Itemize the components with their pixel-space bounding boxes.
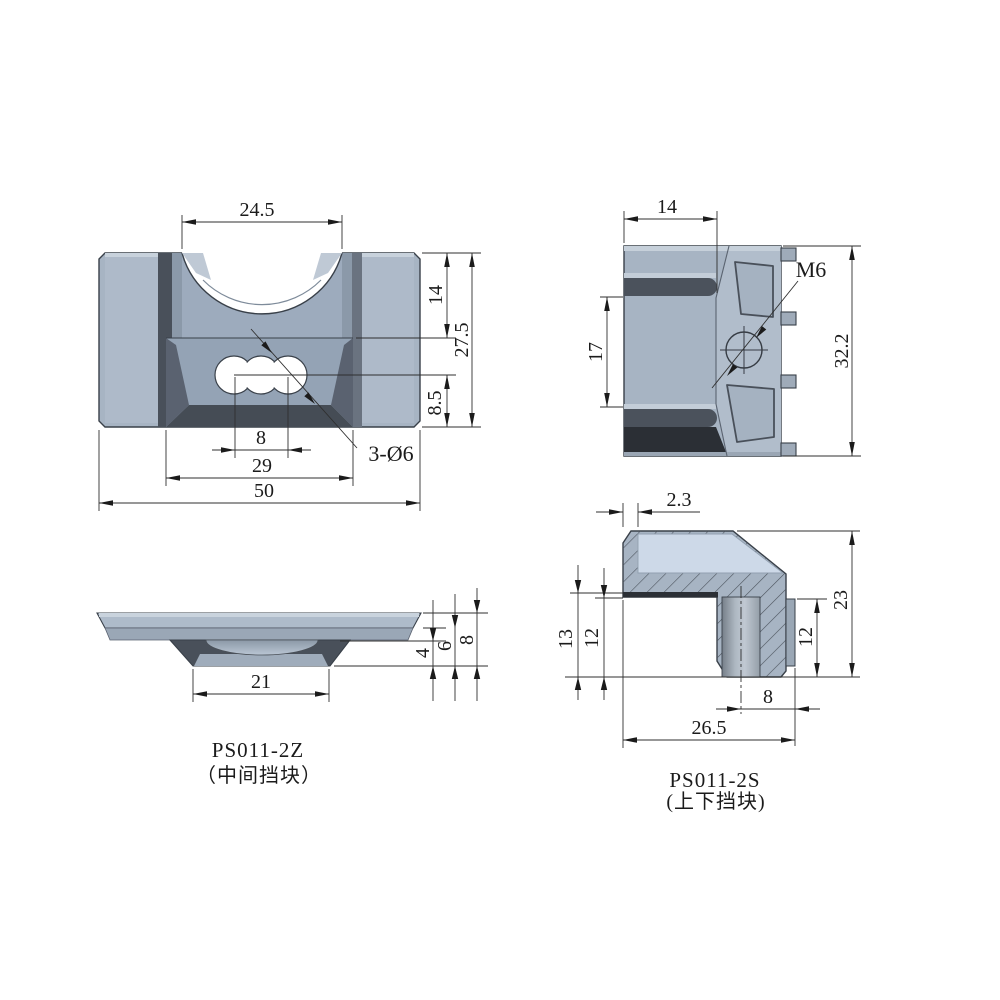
dim-text-step-depth: 4: [412, 648, 434, 658]
dim-text-lower-height: 8.5: [424, 391, 446, 416]
dim-text-thread-callout: M6: [796, 257, 827, 282]
dim-text-top-width: 14: [657, 196, 677, 218]
dim-text-section-total-width: 26.5: [692, 717, 727, 739]
part-number-label: PS011-2Z: [212, 738, 304, 762]
profile-boss-bottom-face: [194, 654, 328, 666]
dim-text-hole-pitch: 8: [256, 427, 266, 449]
dim-text-boss-width: 21: [251, 671, 271, 693]
side-top-highlight: [624, 246, 781, 251]
engineering-drawing-canvas: 24.5 14 8.5 27.5 8 29 50: [0, 0, 1000, 1000]
part-name-label: (上下挡块): [666, 790, 765, 813]
section-dark-strip: [623, 592, 718, 598]
side-bottom-edge: [624, 452, 781, 456]
dim-text-side-total-height: 32.2: [831, 334, 853, 369]
dim-text-groove-span: 17: [585, 342, 607, 362]
dim-text-total-width: 50: [254, 480, 274, 502]
dim-text-notch-width: 24.5: [240, 199, 275, 221]
front-recess-right-wall: [342, 253, 352, 338]
profile-plate-highlight: [99, 613, 419, 617]
dim-text-dish-depth: 6: [434, 641, 456, 651]
part-name-label: （中间挡块）: [196, 764, 322, 787]
front-bottom-bevel: [166, 405, 353, 427]
dim-text-left-outer-height: 13: [555, 629, 577, 649]
dim-text-total-height: 27.5: [451, 323, 473, 358]
dim-text-recess-width: 29: [252, 455, 272, 477]
dim-text-left-inner-height: 12: [581, 628, 603, 648]
side-groove-top: [624, 278, 717, 296]
dim-text-profile-total-height: 8: [456, 635, 478, 645]
dim-text-upper-height: 14: [425, 285, 447, 305]
dim-text-holes-callout: 3-Ø6: [368, 441, 413, 466]
side-groove-top-highlight: [624, 273, 716, 278]
dim-text-wall-thickness: 2.3: [667, 489, 692, 511]
side-underside-dark: [624, 427, 726, 452]
side-pocket-top: [735, 262, 773, 317]
front-right-flange: [362, 257, 414, 423]
dim-text-section-total-height: 23: [830, 590, 852, 610]
front-left-flange: [105, 257, 158, 423]
dim-text-bore-offset: 8: [763, 686, 773, 708]
section-tab: [786, 599, 795, 666]
front-recess-left-wall: [172, 253, 182, 338]
profile-plate-underband: [105, 628, 413, 640]
part-number-label: PS011-2S: [669, 768, 760, 792]
side-groove-bottom: [624, 409, 717, 427]
drawing-background: [0, 0, 1000, 1000]
front-right-dark-band: [352, 253, 362, 427]
side-groove-bottom-highlight: [624, 404, 716, 409]
dim-text-right-height: 12: [795, 627, 817, 647]
